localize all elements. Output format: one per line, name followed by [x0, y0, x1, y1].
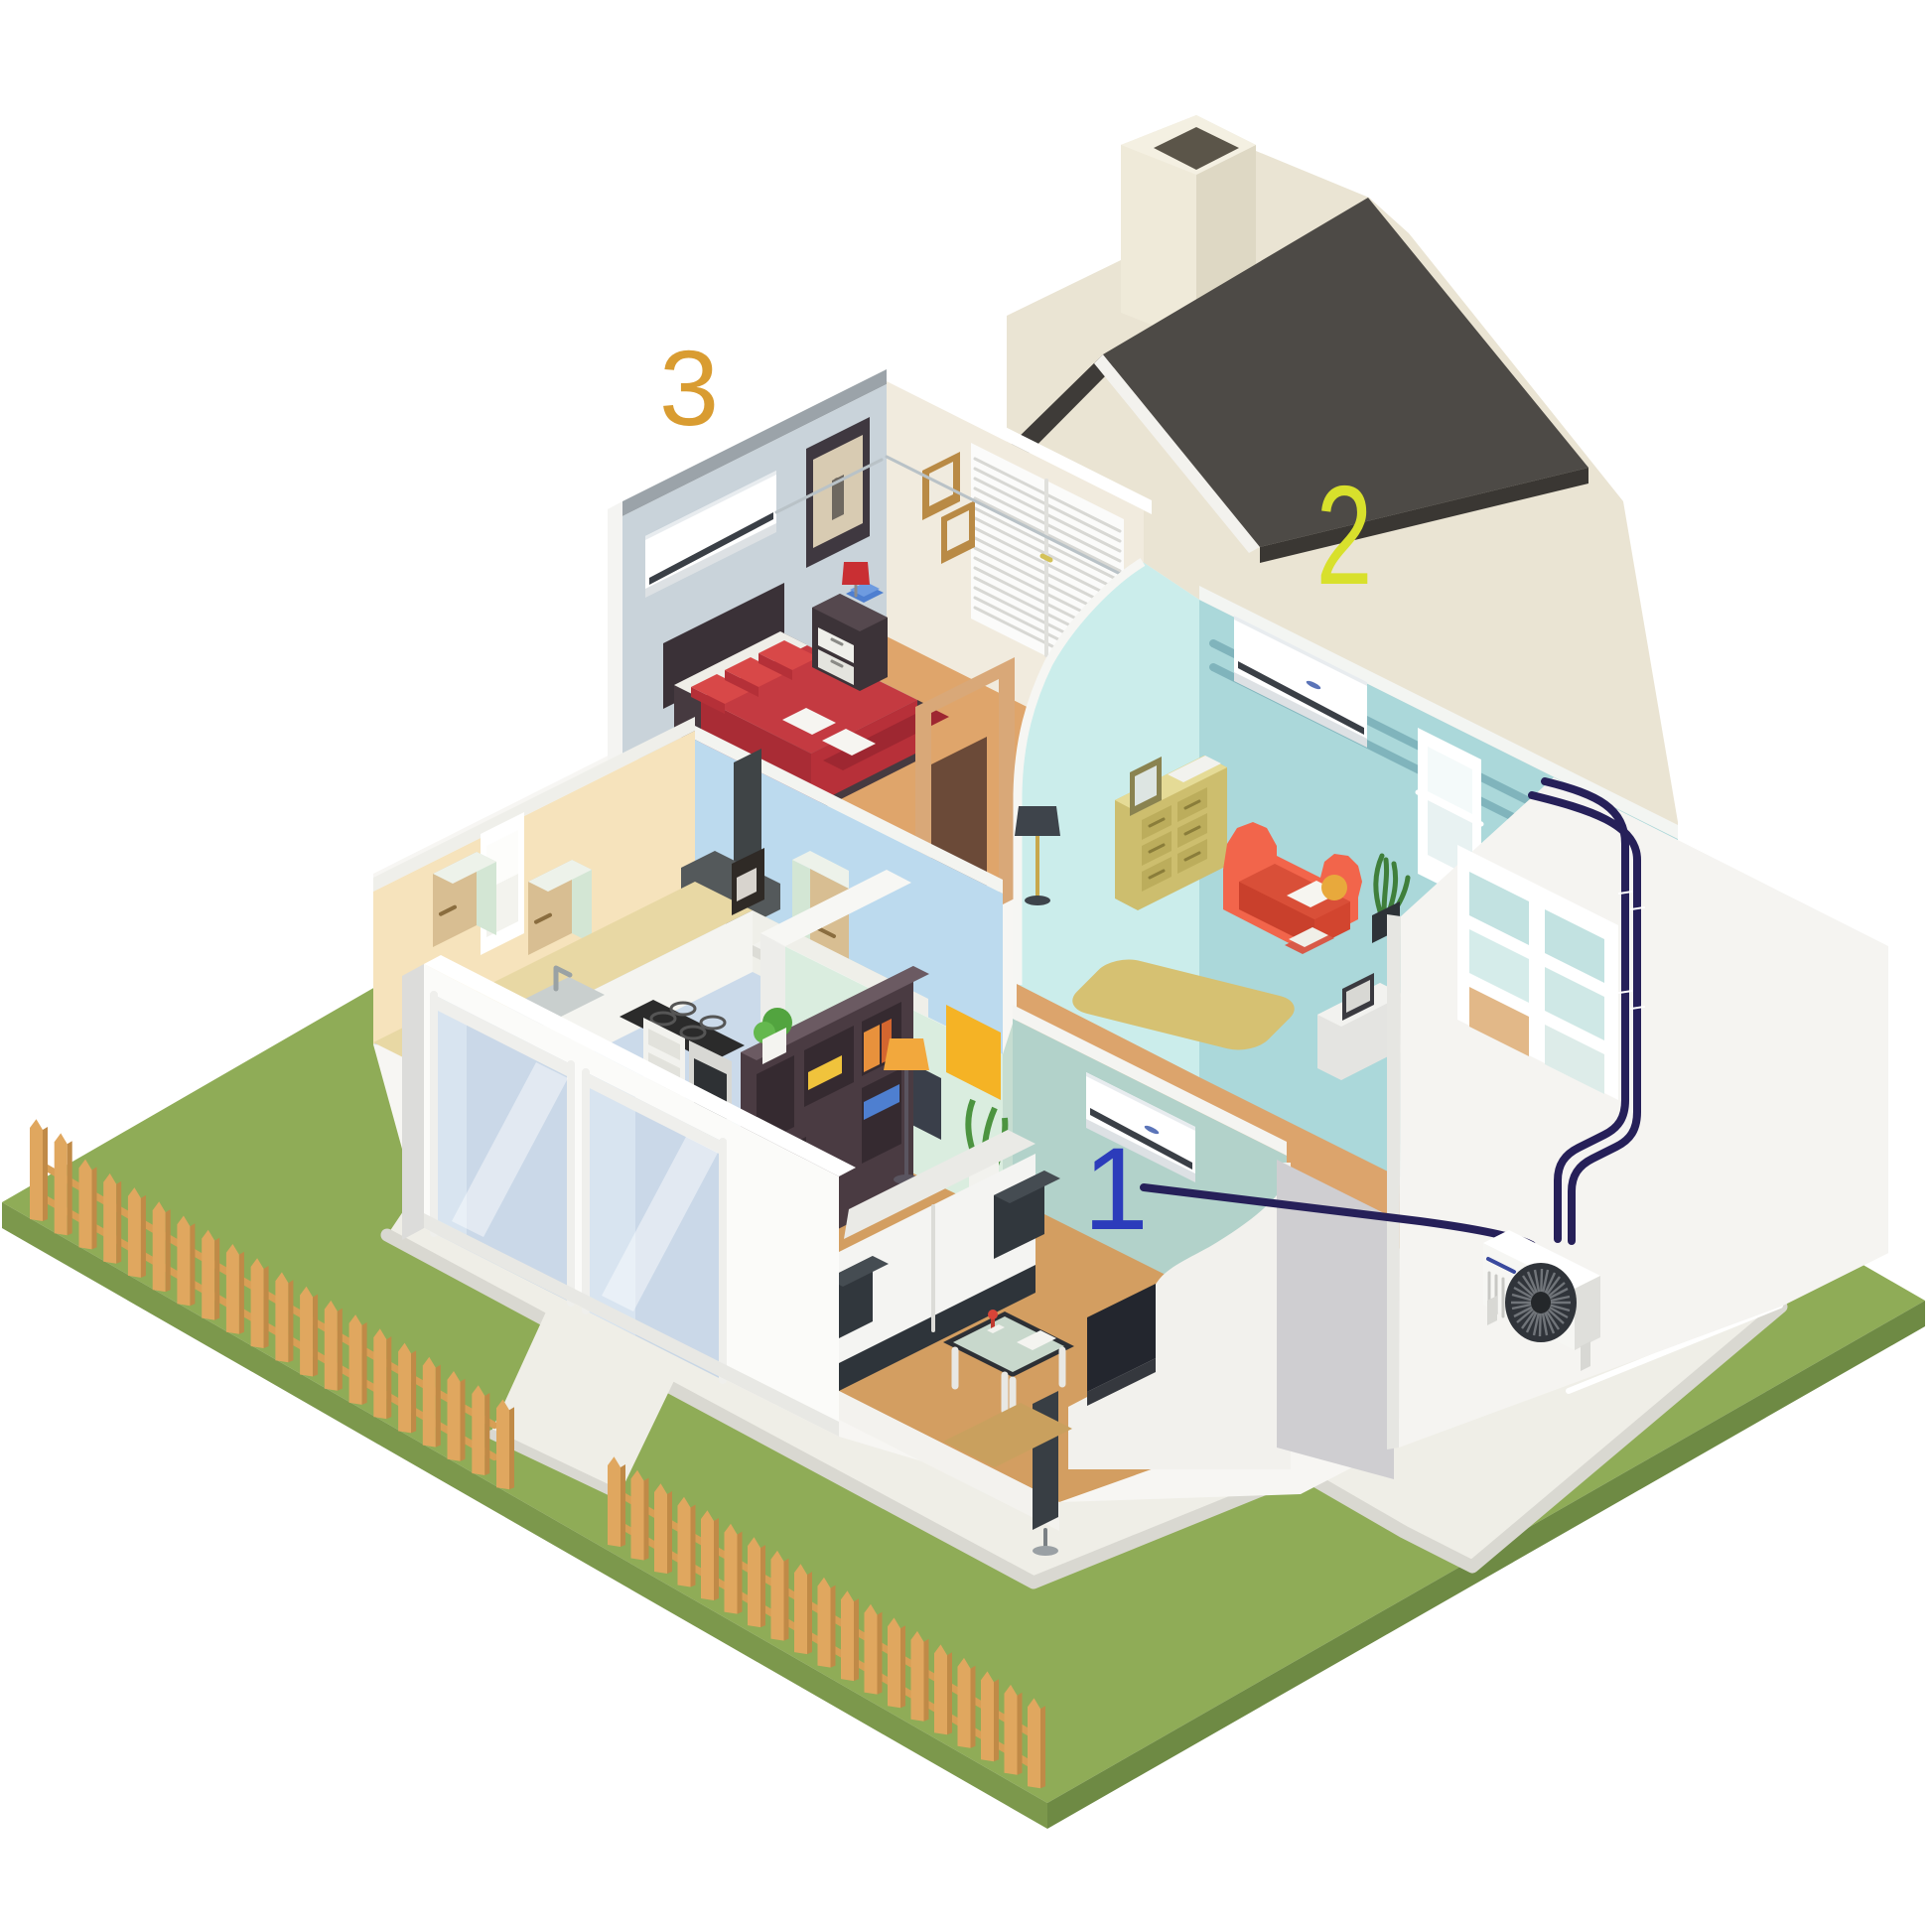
svg-text:2: 2 — [1316, 458, 1373, 615]
svg-text:3: 3 — [659, 328, 719, 448]
svg-text:1: 1 — [1083, 1124, 1149, 1255]
